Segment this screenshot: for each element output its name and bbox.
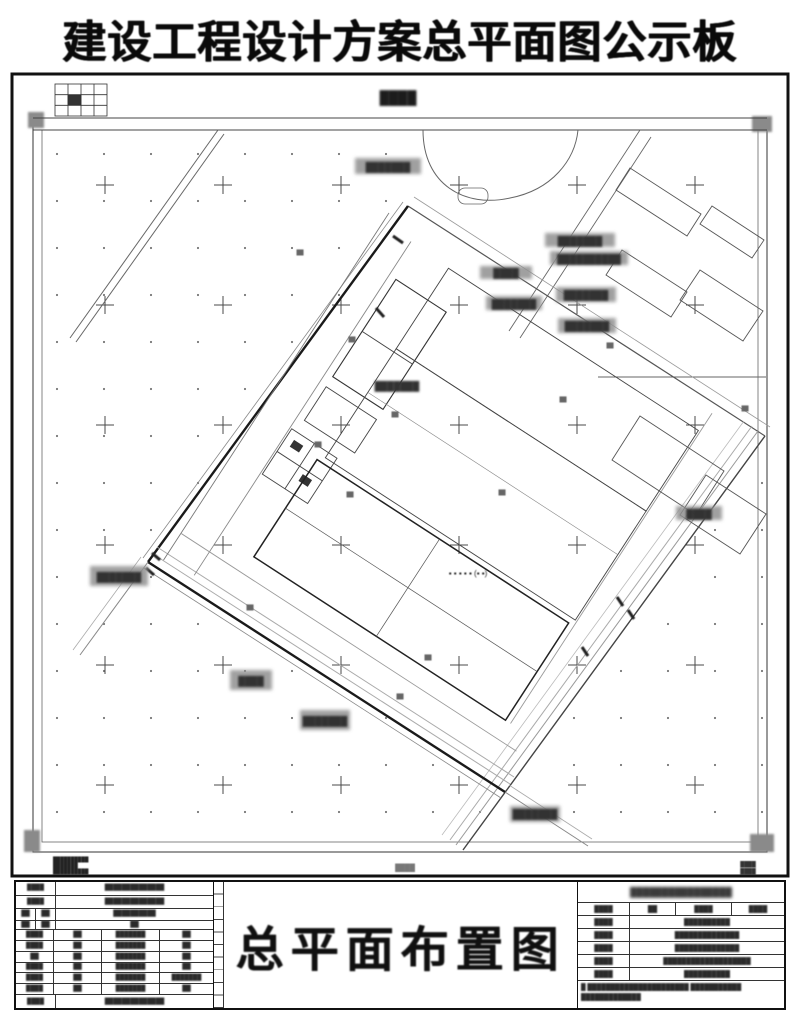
- plan-label: ███████: [565, 320, 610, 332]
- key-map-site-cell: [68, 95, 81, 105]
- note-line: ██████████: [53, 856, 89, 863]
- field-value: ██████████: [684, 971, 730, 978]
- svg-text:██: ██: [296, 249, 304, 256]
- field-label: ████: [26, 986, 43, 992]
- field-value: ███████████████████: [663, 958, 751, 965]
- field-value: ██████████████: [105, 885, 165, 891]
- plan-label: ████: [686, 508, 712, 520]
- field-value: ██████████████: [675, 932, 739, 939]
- svg-text:██: ██: [348, 336, 356, 343]
- survey-cross-grid: [36, 130, 766, 844]
- field-value: ██: [73, 932, 82, 938]
- svg-text:██: ██: [391, 411, 399, 418]
- drawing-title-box: 总平面布置图: [214, 882, 578, 1008]
- field-value: ████: [749, 906, 767, 913]
- field-value: ██████████: [684, 919, 730, 926]
- title-block: ████ ██████████████ ████ ██████████████ …: [14, 880, 786, 1010]
- corner-stamp-line1: ████: [740, 861, 756, 868]
- field-value: ██████████████: [105, 999, 165, 1005]
- field-label: ████: [594, 971, 612, 978]
- field-label: ██: [21, 922, 30, 928]
- plan-label: ███████: [564, 289, 609, 301]
- scale-note: ████: [395, 863, 415, 873]
- field-value: ██: [182, 986, 191, 992]
- field-label: ████: [26, 943, 43, 949]
- svg-text:██: ██: [559, 396, 567, 403]
- field-label: ███████: [116, 964, 146, 970]
- plan-label: ████: [238, 675, 264, 687]
- field-label: ████: [26, 964, 43, 970]
- site-center-label: ███████: [375, 380, 420, 392]
- field-value: ██: [73, 975, 82, 981]
- field-value: ██: [182, 954, 191, 960]
- plan-label: ████: [493, 267, 519, 279]
- key-map: [55, 84, 107, 116]
- approval-table: ████████████████ ████ ██ ████ ████ ████ …: [578, 882, 784, 1008]
- plan-label: ██████████: [557, 253, 621, 265]
- field-label: ███████: [116, 943, 146, 949]
- revision-strip: [214, 882, 224, 1008]
- field-label: ███████: [116, 975, 146, 981]
- field-value: ██: [73, 964, 82, 970]
- field-label: ████: [26, 932, 43, 938]
- legend-notes: ██████████ ███████ ██████████: [53, 856, 89, 875]
- field-label: ███████: [116, 954, 146, 960]
- note-line: ██████████: [53, 868, 89, 875]
- field-value: ██: [182, 932, 191, 938]
- north-road: [33, 118, 767, 130]
- field-value: ██: [130, 922, 139, 928]
- plan-label: ███████: [492, 298, 537, 310]
- field-label: ████: [594, 945, 612, 952]
- svg-text:██: ██: [246, 604, 254, 611]
- svg-text:██: ██: [741, 405, 749, 412]
- authority-name: ████████████████: [630, 887, 732, 897]
- field-label: ██: [30, 954, 39, 960]
- field-label: ██: [41, 911, 50, 917]
- field-value: ██████████████: [675, 945, 739, 952]
- svg-text:██: ██: [606, 342, 614, 349]
- plan-label: ███████: [513, 808, 558, 820]
- field-value: ██: [182, 943, 191, 949]
- svg-text:██: ██: [396, 693, 404, 700]
- field-label: ████: [594, 906, 612, 913]
- corner-stamp-line2: ████: [740, 868, 756, 875]
- road-name-label: ████: [380, 90, 418, 106]
- field-label: ████: [594, 932, 612, 939]
- field-label: ██: [41, 922, 50, 928]
- approval-note-line2: █████████████: [581, 993, 741, 1003]
- field-label: ████: [594, 919, 612, 926]
- field-value: ██: [73, 943, 82, 949]
- drawing-title: 总平面布置图: [235, 910, 565, 980]
- field-label: ████: [594, 958, 612, 965]
- field-label: ████: [27, 885, 44, 891]
- project-info-table: ████ ██████████████ ████ ██████████████ …: [16, 882, 214, 1008]
- field-label: ██: [21, 911, 30, 917]
- field-value: ██████████████: [105, 899, 165, 905]
- note-line: ███████: [53, 862, 78, 869]
- field-value: ███████: [172, 975, 202, 981]
- plan-label: ███████: [558, 235, 603, 247]
- parking-dots-row: ▪ ▪ ▪ ▪ ▪ (▪ ▪): [449, 569, 488, 578]
- field-label: ████: [27, 899, 44, 905]
- field-label: ███████: [116, 986, 146, 992]
- svg-text:██: ██: [498, 489, 506, 496]
- plan-label: ███████: [97, 571, 142, 583]
- field-value: ██: [648, 906, 657, 913]
- field-value: ██: [73, 986, 82, 992]
- public-notice-board: 建设工程设计方案总平面图公示板: [0, 0, 800, 1024]
- field-value: ██: [182, 964, 191, 970]
- approval-note-line1: █ ██████████████████████ ███████████: [581, 983, 741, 993]
- plan-label: ███████: [303, 715, 348, 727]
- site-plan-drawing: ███████ ███████ ██████████ ███████ █████…: [0, 0, 800, 1024]
- field-label: ███████: [116, 932, 146, 938]
- field-label: ████: [694, 906, 712, 913]
- svg-text:██: ██: [314, 441, 322, 448]
- field-value: ██: [73, 954, 82, 960]
- svg-text:██: ██: [346, 491, 354, 498]
- field-label: ████: [26, 975, 43, 981]
- plan-label: ███████: [366, 161, 411, 173]
- field-value: ██████████: [113, 911, 156, 917]
- field-label: ████: [27, 999, 44, 1005]
- svg-text:██: ██: [424, 654, 432, 661]
